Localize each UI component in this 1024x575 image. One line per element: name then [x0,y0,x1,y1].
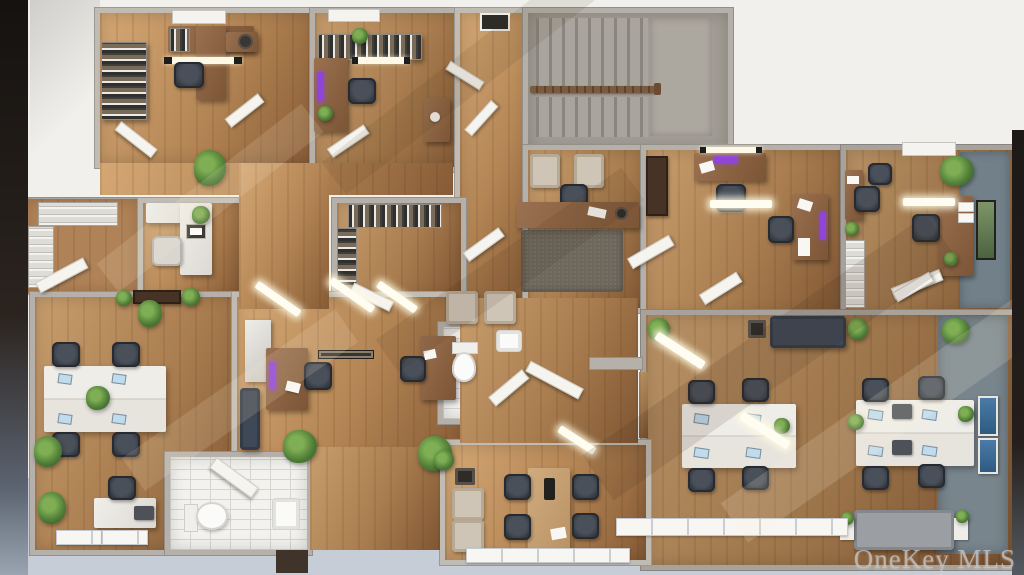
building-shadow [30,0,100,200]
desktop-printer [892,404,912,419]
picture-frame [978,438,998,474]
bench-desk-cluster [44,366,166,432]
laptop-screen [921,445,937,457]
bookshelf [101,42,147,120]
guest-chair [574,154,604,188]
stair-flight-lower [536,97,648,137]
office-chair [742,466,769,490]
paper-tray [958,202,974,212]
doorway-dark [276,550,308,573]
stair-railing-post [654,83,661,95]
bench-desk-cluster [856,400,974,466]
desk-books [170,28,190,52]
photo-edge-left [0,0,28,575]
office-chair [688,380,715,404]
armchair [452,488,484,520]
monitor-purple [269,362,276,390]
stool [238,34,253,49]
toilet [196,502,228,530]
floor-vent [318,350,374,359]
sink [496,330,522,352]
picture-frame [978,396,998,436]
paper [798,238,810,256]
plant [845,222,859,236]
office-chair [152,236,182,266]
office-chair [112,342,140,367]
guest-chair [868,163,892,185]
skylight [902,142,956,156]
office-chair [504,514,531,540]
office-chair [768,216,794,243]
laptop-screen [693,447,709,459]
hallway-mid [239,163,329,309]
office-chair [112,432,140,457]
laptop-screen [111,373,126,385]
cabinet [646,156,668,216]
printer [134,506,154,520]
plant [944,252,958,266]
monitor-purple [820,212,826,240]
guest-chair [530,154,560,188]
sink [272,498,300,530]
wire-shelf [38,202,118,226]
stair-railing [530,86,656,93]
wall-stub [590,358,642,369]
office-chair [504,474,531,500]
office-chair [348,78,376,104]
office-chair [108,476,136,500]
paper-tray [958,213,974,223]
skylight [328,9,380,22]
side-table [748,320,766,338]
office-chair [572,513,599,539]
shelf [337,228,357,286]
floor-plan-scene: OneKey MLS [0,0,1024,575]
rug [521,230,623,292]
laptop-screen [111,413,126,425]
bench-seat [240,388,260,450]
shelf [845,240,865,308]
laptop-screen [57,373,72,385]
toilet [452,352,476,382]
stair-flight-upper [536,18,648,90]
laptop-screen [57,413,72,425]
office-chair [572,474,599,500]
monitor-purple [714,156,738,164]
picture-frame [976,200,996,260]
window-band [102,530,148,545]
light-bar [710,200,772,208]
office-chair [918,464,945,488]
picture-frame [480,13,510,31]
laptop-screen [921,409,937,421]
window-band [466,548,630,563]
office-chair [688,468,715,492]
laptop [186,224,206,239]
doorgap-open-office [639,372,648,438]
paper [847,176,859,184]
skylight [172,10,226,24]
sofa-navy [770,316,846,348]
laptop-screen [745,447,761,459]
light-fixture [700,147,762,153]
desk-tray [615,207,628,220]
office-chair [52,342,80,367]
room-staircase [523,8,733,155]
shelf [348,204,442,228]
plant [86,386,110,410]
laptop-screen [867,445,883,457]
waiting-chair [484,291,516,324]
tablet [544,478,555,500]
window-band [56,530,102,545]
waiting-chair [446,291,478,324]
office-chair [862,466,889,490]
laptop-screen [867,409,883,421]
photo-edge-right [1012,130,1024,575]
office-chair [862,378,889,402]
stair-landing [650,18,712,136]
light-fixture [352,57,410,64]
watermark: OneKey MLS [854,544,1016,575]
office-chair [400,356,426,382]
office-chair [918,376,945,400]
office-chair [304,362,332,390]
office-chair [174,62,204,88]
desktop-printer [892,440,912,455]
laptop-screen [693,413,709,425]
side-table [455,468,475,485]
monitor-purple [317,72,324,102]
guest-chair [854,186,880,212]
office-chair [912,214,940,242]
vase [430,112,440,122]
light-bar [903,198,955,206]
office-chair [742,378,769,402]
window-band [616,518,848,536]
